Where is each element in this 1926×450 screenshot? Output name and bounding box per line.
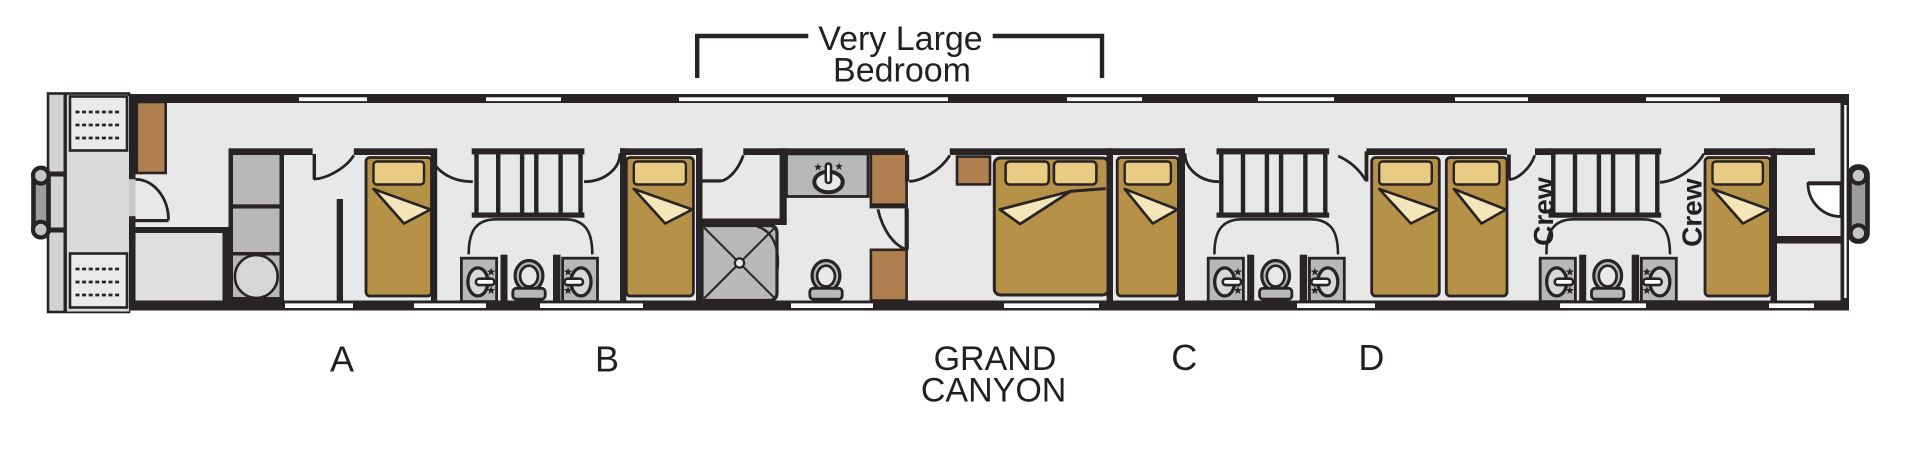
svg-text:B: B — [595, 339, 619, 380]
svg-text:CANYON: CANYON — [921, 372, 1066, 410]
svg-text:Crew: Crew — [1528, 177, 1559, 246]
svg-text:Bedroom: Bedroom — [833, 52, 971, 90]
svg-text:D: D — [1358, 337, 1384, 378]
svg-text:A: A — [330, 339, 354, 380]
svg-text:Crew: Crew — [1677, 178, 1708, 247]
svg-text:C: C — [1171, 337, 1197, 378]
